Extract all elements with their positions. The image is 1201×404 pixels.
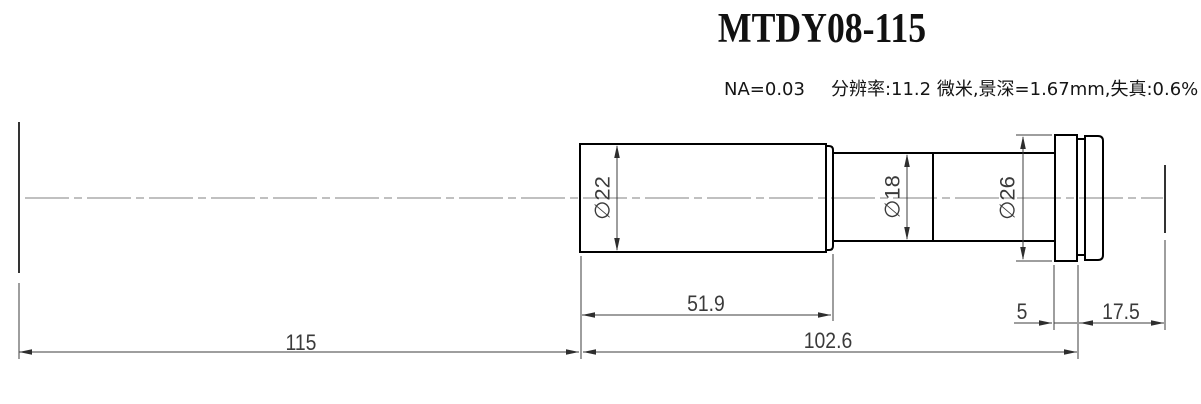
dim-flange-diameter: ∅26 [997, 163, 1020, 233]
mid-tube [833, 153, 1055, 241]
spec-na: NA=0.03 [724, 79, 805, 100]
groove-ring [1077, 139, 1085, 255]
dim-working-distance: 115 [266, 332, 336, 354]
dim-front-diameter: ∅22 [592, 163, 615, 233]
dim-back-length: 17.5 [1086, 301, 1156, 323]
dim-front-length: 51.9 [671, 293, 741, 315]
dim-total-length: 102.6 [793, 330, 863, 352]
lens-technical-drawing: MTDY08-115 NA=0.03分辨率:11.2 微米,景深=1.67mm,… [0, 0, 1201, 404]
dim-mid-diameter: ∅18 [882, 162, 905, 232]
spec-optics: 分辨率:11.2 微米,景深=1.67mm,失真:0.6% [831, 79, 1198, 100]
drawing-title: MTDY08-115 [712, 8, 933, 50]
spec-line: NA=0.03分辨率:11.2 微米,景深=1.67mm,失真:0.6% [724, 80, 1198, 100]
dim-flange-thickness: 5 [1004, 301, 1039, 323]
